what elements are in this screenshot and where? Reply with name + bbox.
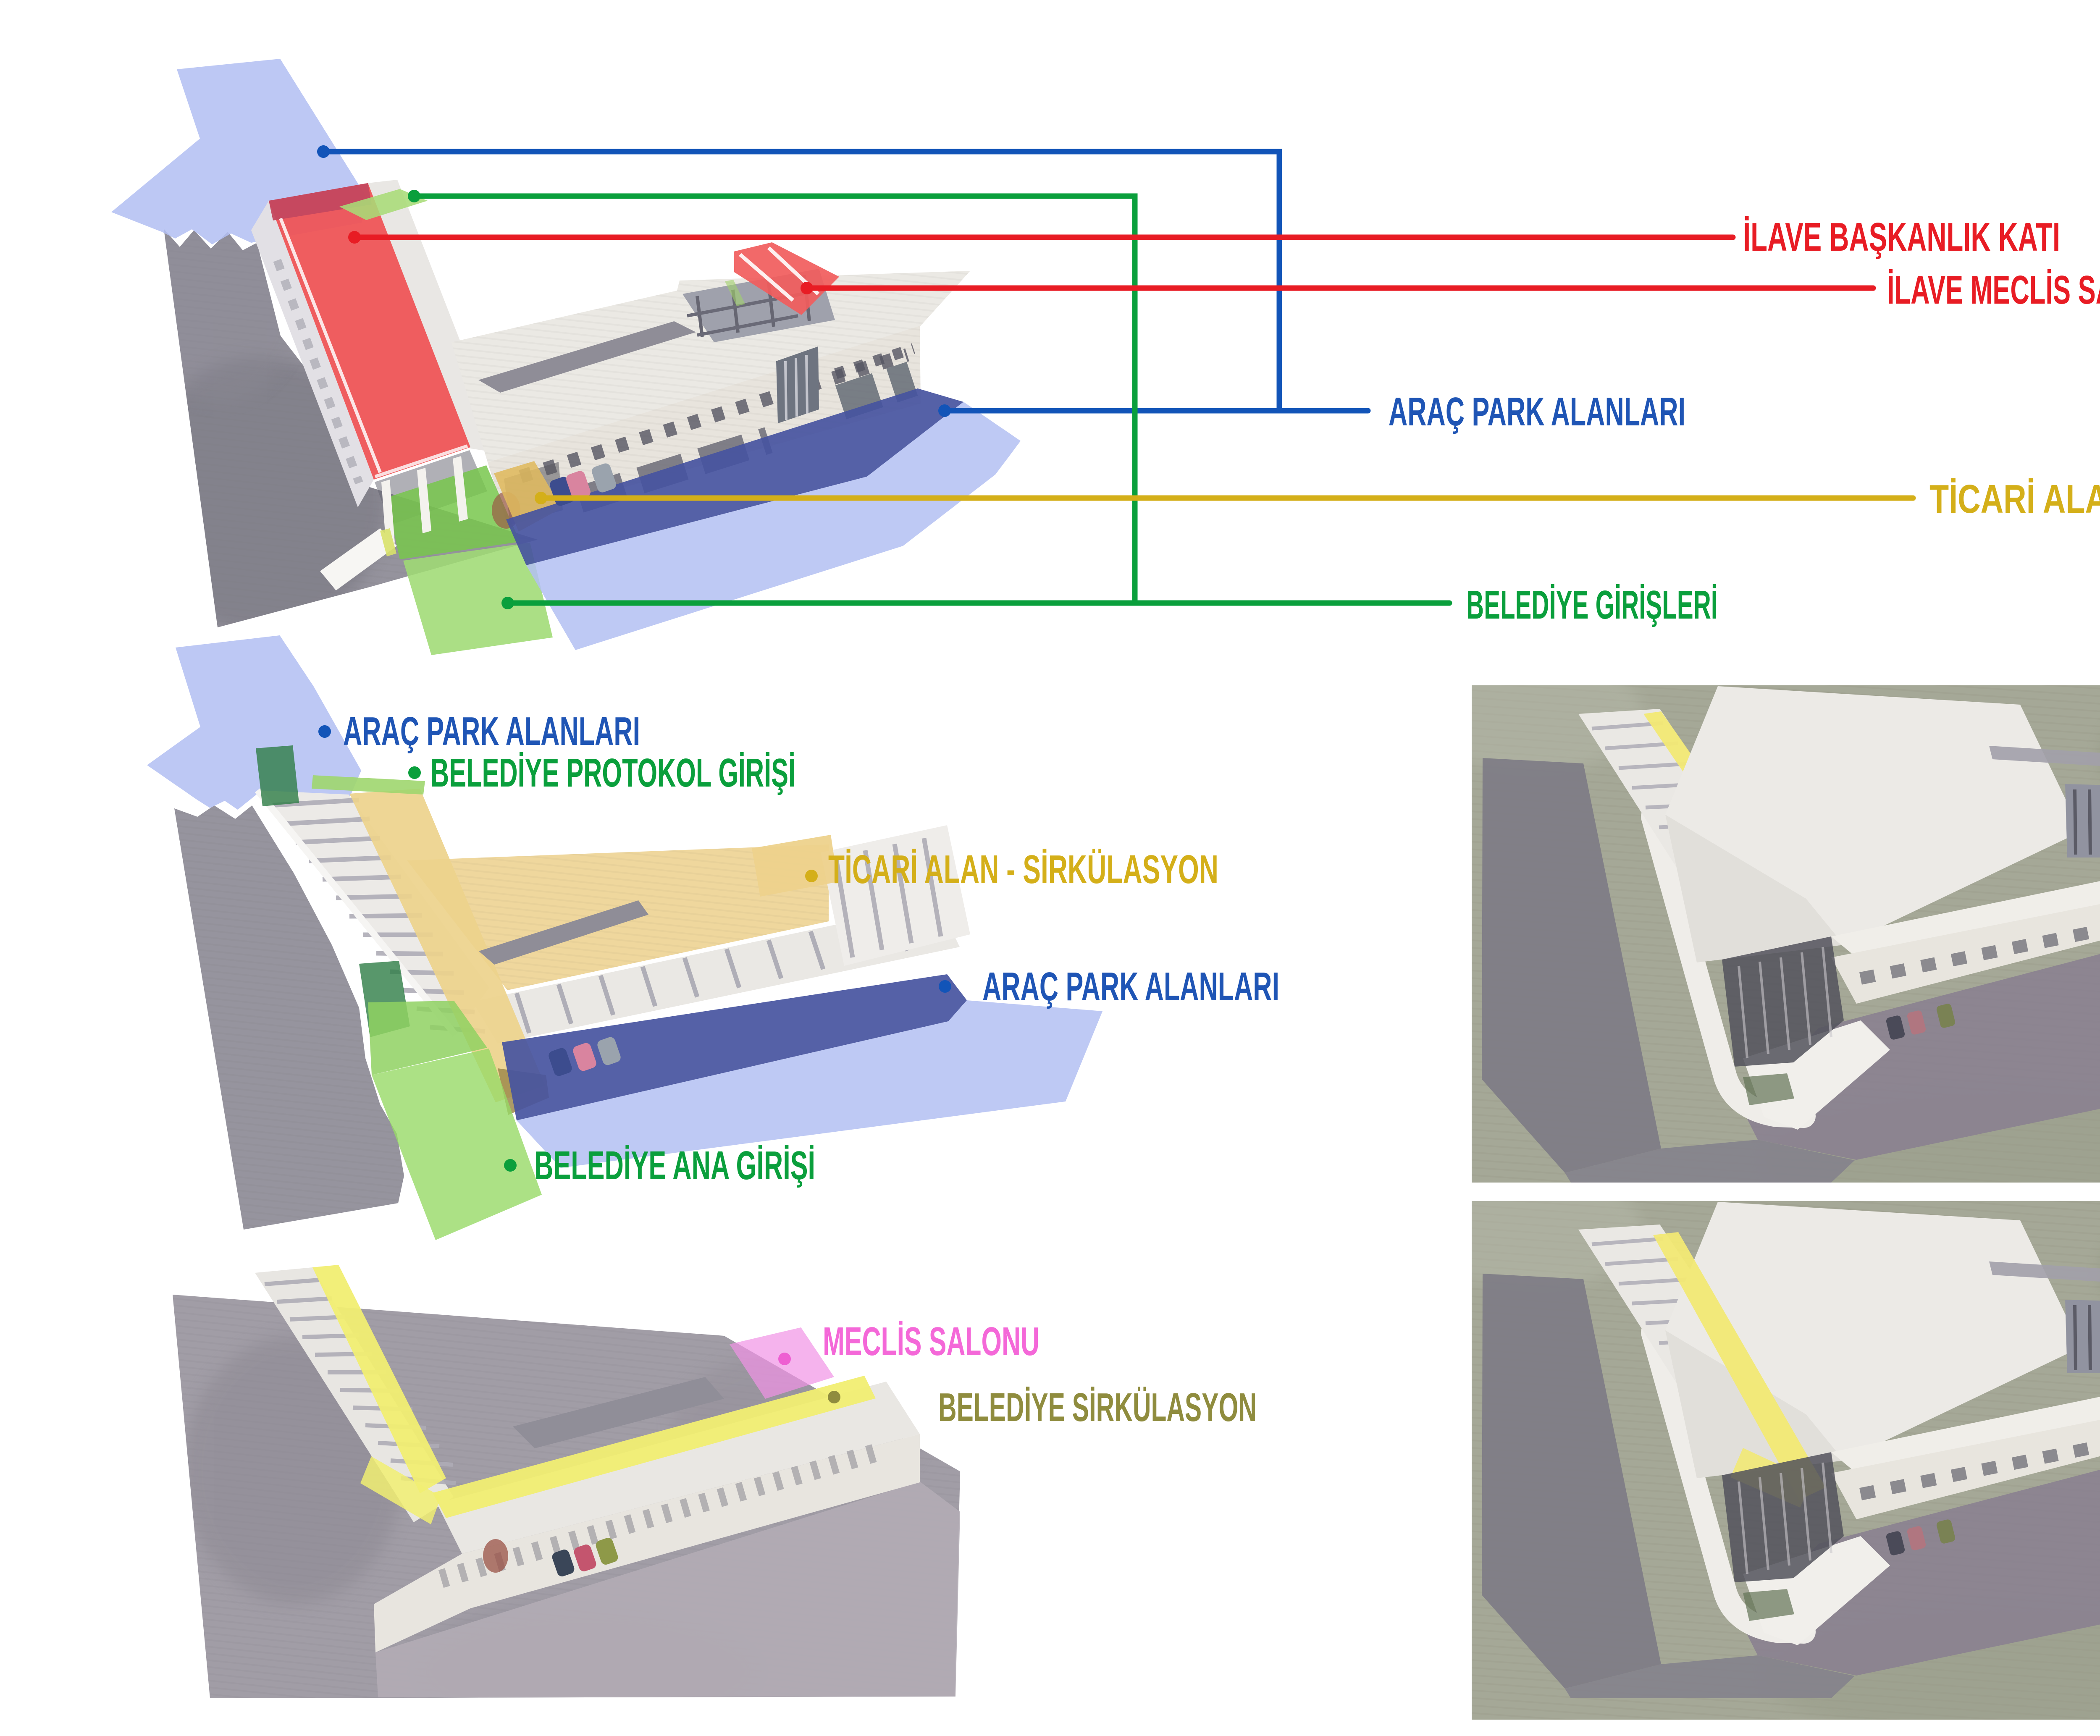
svg-text:ARAÇ PARK ALANLARI: ARAÇ PARK ALANLARI (982, 964, 1279, 1009)
svg-text:TİCARİ ALAN YAYA GİRİŞİ: TİCARİ ALAN YAYA GİRİŞİ (1929, 477, 2100, 522)
svg-text:TİCARİ ALAN - SİRKÜLASYON: TİCARİ ALAN - SİRKÜLASYON (828, 847, 1218, 892)
svg-text:ARAÇ PARK ALANLARI: ARAÇ PARK ALANLARI (1389, 389, 1685, 434)
svg-text:BELEDİYE SİRKÜLASYON: BELEDİYE SİRKÜLASYON (938, 1385, 1257, 1430)
svg-text:BELEDİYE ANA GİRİŞİ: BELEDİYE ANA GİRİŞİ (534, 1143, 815, 1188)
svg-text:İLAVE MECLİS SALONU: İLAVE MECLİS SALONU (1887, 267, 2100, 312)
svg-text:İLAVE BAŞKANLIK KATI: İLAVE BAŞKANLIK KATI (1743, 215, 2060, 260)
svg-text:BELEDİYE GİRİŞLERİ: BELEDİYE GİRİŞLERİ (1466, 582, 1718, 627)
svg-text:MECLİS SALONU: MECLİS SALONU (823, 1319, 1039, 1364)
svg-text:ARAÇ PARK ALANLARI: ARAÇ PARK ALANLARI (343, 709, 640, 754)
svg-text:BELEDİYE PROTOKOL GİRİŞİ: BELEDİYE PROTOKOL GİRİŞİ (430, 750, 795, 795)
